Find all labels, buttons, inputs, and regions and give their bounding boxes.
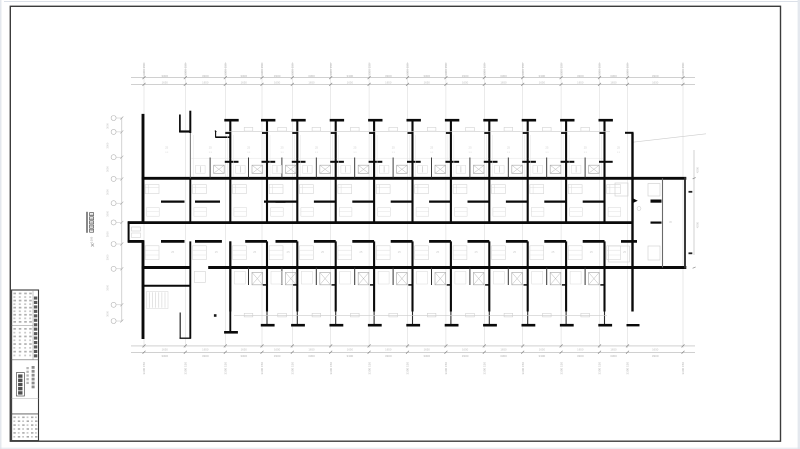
svg-text:3300 150: 3300 150 <box>521 362 525 375</box>
svg-text:1650: 1650 <box>274 348 281 352</box>
svg-text:1650: 1650 <box>241 348 248 352</box>
svg-text:3300 150: 3300 150 <box>184 362 188 375</box>
svg-text:3300 150: 3300 150 <box>626 362 630 375</box>
svg-text:3300: 3300 <box>347 74 354 78</box>
svg-text:3300: 3300 <box>385 354 392 358</box>
svg-text:3300: 3300 <box>240 74 247 78</box>
svg-text:3300: 3300 <box>500 354 507 358</box>
svg-text:3300 150: 3300 150 <box>681 63 685 76</box>
svg-text:3300: 3300 <box>202 74 209 78</box>
svg-text:25: 25 <box>398 250 402 254</box>
svg-text:1650: 1650 <box>202 348 209 352</box>
svg-text:3300: 3300 <box>577 74 584 78</box>
svg-text:3300: 3300 <box>462 74 469 78</box>
svg-text:25: 25 <box>430 146 434 150</box>
svg-text:3300 150: 3300 150 <box>142 63 146 76</box>
svg-text:25: 25 <box>469 146 473 150</box>
svg-text:3300 150: 3300 150 <box>142 362 146 375</box>
svg-text:3000: 3000 <box>106 254 110 260</box>
svg-text:3300 150: 3300 150 <box>291 63 295 76</box>
svg-text:3300 150: 3300 150 <box>406 362 410 375</box>
svg-text:25: 25 <box>281 146 285 150</box>
svg-text:1650: 1650 <box>424 348 431 352</box>
svg-text:25: 25 <box>353 146 357 150</box>
svg-text:3300 150: 3300 150 <box>559 362 563 375</box>
svg-text:1650: 1650 <box>652 348 659 352</box>
svg-text:3300: 3300 <box>577 354 584 358</box>
svg-text:1650: 1650 <box>308 348 315 352</box>
svg-text:3300: 3300 <box>308 74 315 78</box>
svg-text:3000: 3000 <box>106 284 110 290</box>
svg-text:1650: 1650 <box>308 81 315 85</box>
svg-text:4200: 4200 <box>696 221 700 228</box>
svg-text:3300: 3300 <box>385 74 392 78</box>
svg-text:3300 150: 3300 150 <box>224 63 228 76</box>
svg-text:25: 25 <box>209 146 213 150</box>
svg-text:3300 150: 3300 150 <box>291 362 295 375</box>
svg-text:1650: 1650 <box>347 348 354 352</box>
svg-text:25: 25 <box>475 250 479 254</box>
svg-text:4200: 4200 <box>696 166 700 173</box>
svg-text:3300 150: 3300 150 <box>681 362 685 375</box>
svg-text:3300 150: 3300 150 <box>329 63 333 76</box>
svg-text:1650: 1650 <box>610 348 617 352</box>
svg-text:25: 25 <box>247 146 251 150</box>
svg-text:25: 25 <box>551 250 555 254</box>
svg-text:3300 150: 3300 150 <box>598 362 602 375</box>
svg-text:1650: 1650 <box>241 81 248 85</box>
svg-text:1650: 1650 <box>162 81 169 85</box>
svg-text:1650: 1650 <box>462 81 469 85</box>
svg-text:25: 25 <box>617 146 621 150</box>
svg-text:1650: 1650 <box>385 348 392 352</box>
svg-text:3300 150: 3300 150 <box>260 362 264 375</box>
svg-text:3300 150: 3300 150 <box>329 362 333 375</box>
svg-text:25: 25 <box>165 146 169 150</box>
svg-text:1650: 1650 <box>577 81 584 85</box>
svg-text:3300 150: 3300 150 <box>184 63 188 76</box>
svg-text:3300: 3300 <box>202 354 209 358</box>
svg-text:3300: 3300 <box>240 354 247 358</box>
svg-text:25: 25 <box>315 146 319 150</box>
svg-text:3300 150: 3300 150 <box>444 63 448 76</box>
svg-text:25: 25 <box>436 250 440 254</box>
svg-text:3000: 3000 <box>106 166 110 172</box>
svg-text:3300 150: 3300 150 <box>224 362 228 375</box>
svg-text:25: 25 <box>287 250 291 254</box>
svg-text:1650: 1650 <box>202 81 209 85</box>
svg-text:1650: 1650 <box>347 81 354 85</box>
svg-text:3300 150: 3300 150 <box>521 63 525 76</box>
svg-text:25: 25 <box>215 250 219 254</box>
svg-text:3300: 3300 <box>462 354 469 358</box>
svg-text:3300 150: 3300 150 <box>626 63 630 76</box>
svg-text:1650: 1650 <box>539 81 546 85</box>
svg-text:1650: 1650 <box>462 348 469 352</box>
svg-text:3300: 3300 <box>539 74 546 78</box>
svg-text:3300 150: 3300 150 <box>483 63 487 76</box>
svg-text:3300: 3300 <box>274 74 281 78</box>
svg-text:3300: 3300 <box>274 354 281 358</box>
svg-text:3300 150: 3300 150 <box>260 63 264 76</box>
svg-text:3300 150: 3300 150 <box>559 63 563 76</box>
svg-text:1650: 1650 <box>577 348 584 352</box>
svg-text:3000: 3000 <box>106 123 110 129</box>
svg-text:1:100: 1:100 <box>89 236 93 243</box>
svg-text:25: 25 <box>513 250 517 254</box>
svg-text:3300: 3300 <box>652 354 659 358</box>
svg-text:3300: 3300 <box>610 354 617 358</box>
svg-text:3300: 3300 <box>161 74 168 78</box>
svg-text:25: 25 <box>359 250 363 254</box>
svg-text:25: 25 <box>545 146 549 150</box>
svg-text:1650: 1650 <box>500 81 507 85</box>
svg-text:3300 150: 3300 150 <box>598 63 602 76</box>
svg-text:1650: 1650 <box>424 81 431 85</box>
svg-text:25: 25 <box>623 250 627 254</box>
svg-text:3300: 3300 <box>610 74 617 78</box>
svg-text:25: 25 <box>507 146 511 150</box>
svg-text:3000: 3000 <box>106 210 110 216</box>
svg-text:3300 150: 3300 150 <box>367 362 371 375</box>
svg-text:3300 150: 3300 150 <box>367 63 371 76</box>
svg-text:1650: 1650 <box>385 81 392 85</box>
svg-text:3300: 3300 <box>539 354 546 358</box>
svg-text:1650: 1650 <box>610 81 617 85</box>
svg-text:3000: 3000 <box>106 142 110 148</box>
svg-text:3300: 3300 <box>308 354 315 358</box>
svg-text:3300: 3300 <box>500 74 507 78</box>
svg-text:3000: 3000 <box>106 231 110 237</box>
svg-text:3300 150: 3300 150 <box>483 362 487 375</box>
svg-text:1650: 1650 <box>500 348 507 352</box>
svg-text:25: 25 <box>584 146 588 150</box>
svg-text:25: 25 <box>253 250 257 254</box>
svg-text:3300: 3300 <box>347 354 354 358</box>
svg-text:1650: 1650 <box>539 348 546 352</box>
svg-text:S: S <box>669 221 673 223</box>
svg-text:3300: 3300 <box>423 354 430 358</box>
svg-text:1650: 1650 <box>274 81 281 85</box>
svg-text:1650: 1650 <box>162 348 169 352</box>
svg-text:3300: 3300 <box>652 74 659 78</box>
svg-text:3000: 3000 <box>106 310 110 316</box>
svg-text:3300 150: 3300 150 <box>406 63 410 76</box>
svg-text:25: 25 <box>321 250 325 254</box>
svg-text:3000: 3000 <box>106 189 110 195</box>
svg-text:3300: 3300 <box>161 354 168 358</box>
svg-text:25: 25 <box>392 146 396 150</box>
svg-text:25: 25 <box>590 250 594 254</box>
svg-text:3300: 3300 <box>423 74 430 78</box>
svg-text:25: 25 <box>171 250 175 254</box>
svg-text:1650: 1650 <box>652 81 659 85</box>
svg-text:3300 150: 3300 150 <box>444 362 448 375</box>
